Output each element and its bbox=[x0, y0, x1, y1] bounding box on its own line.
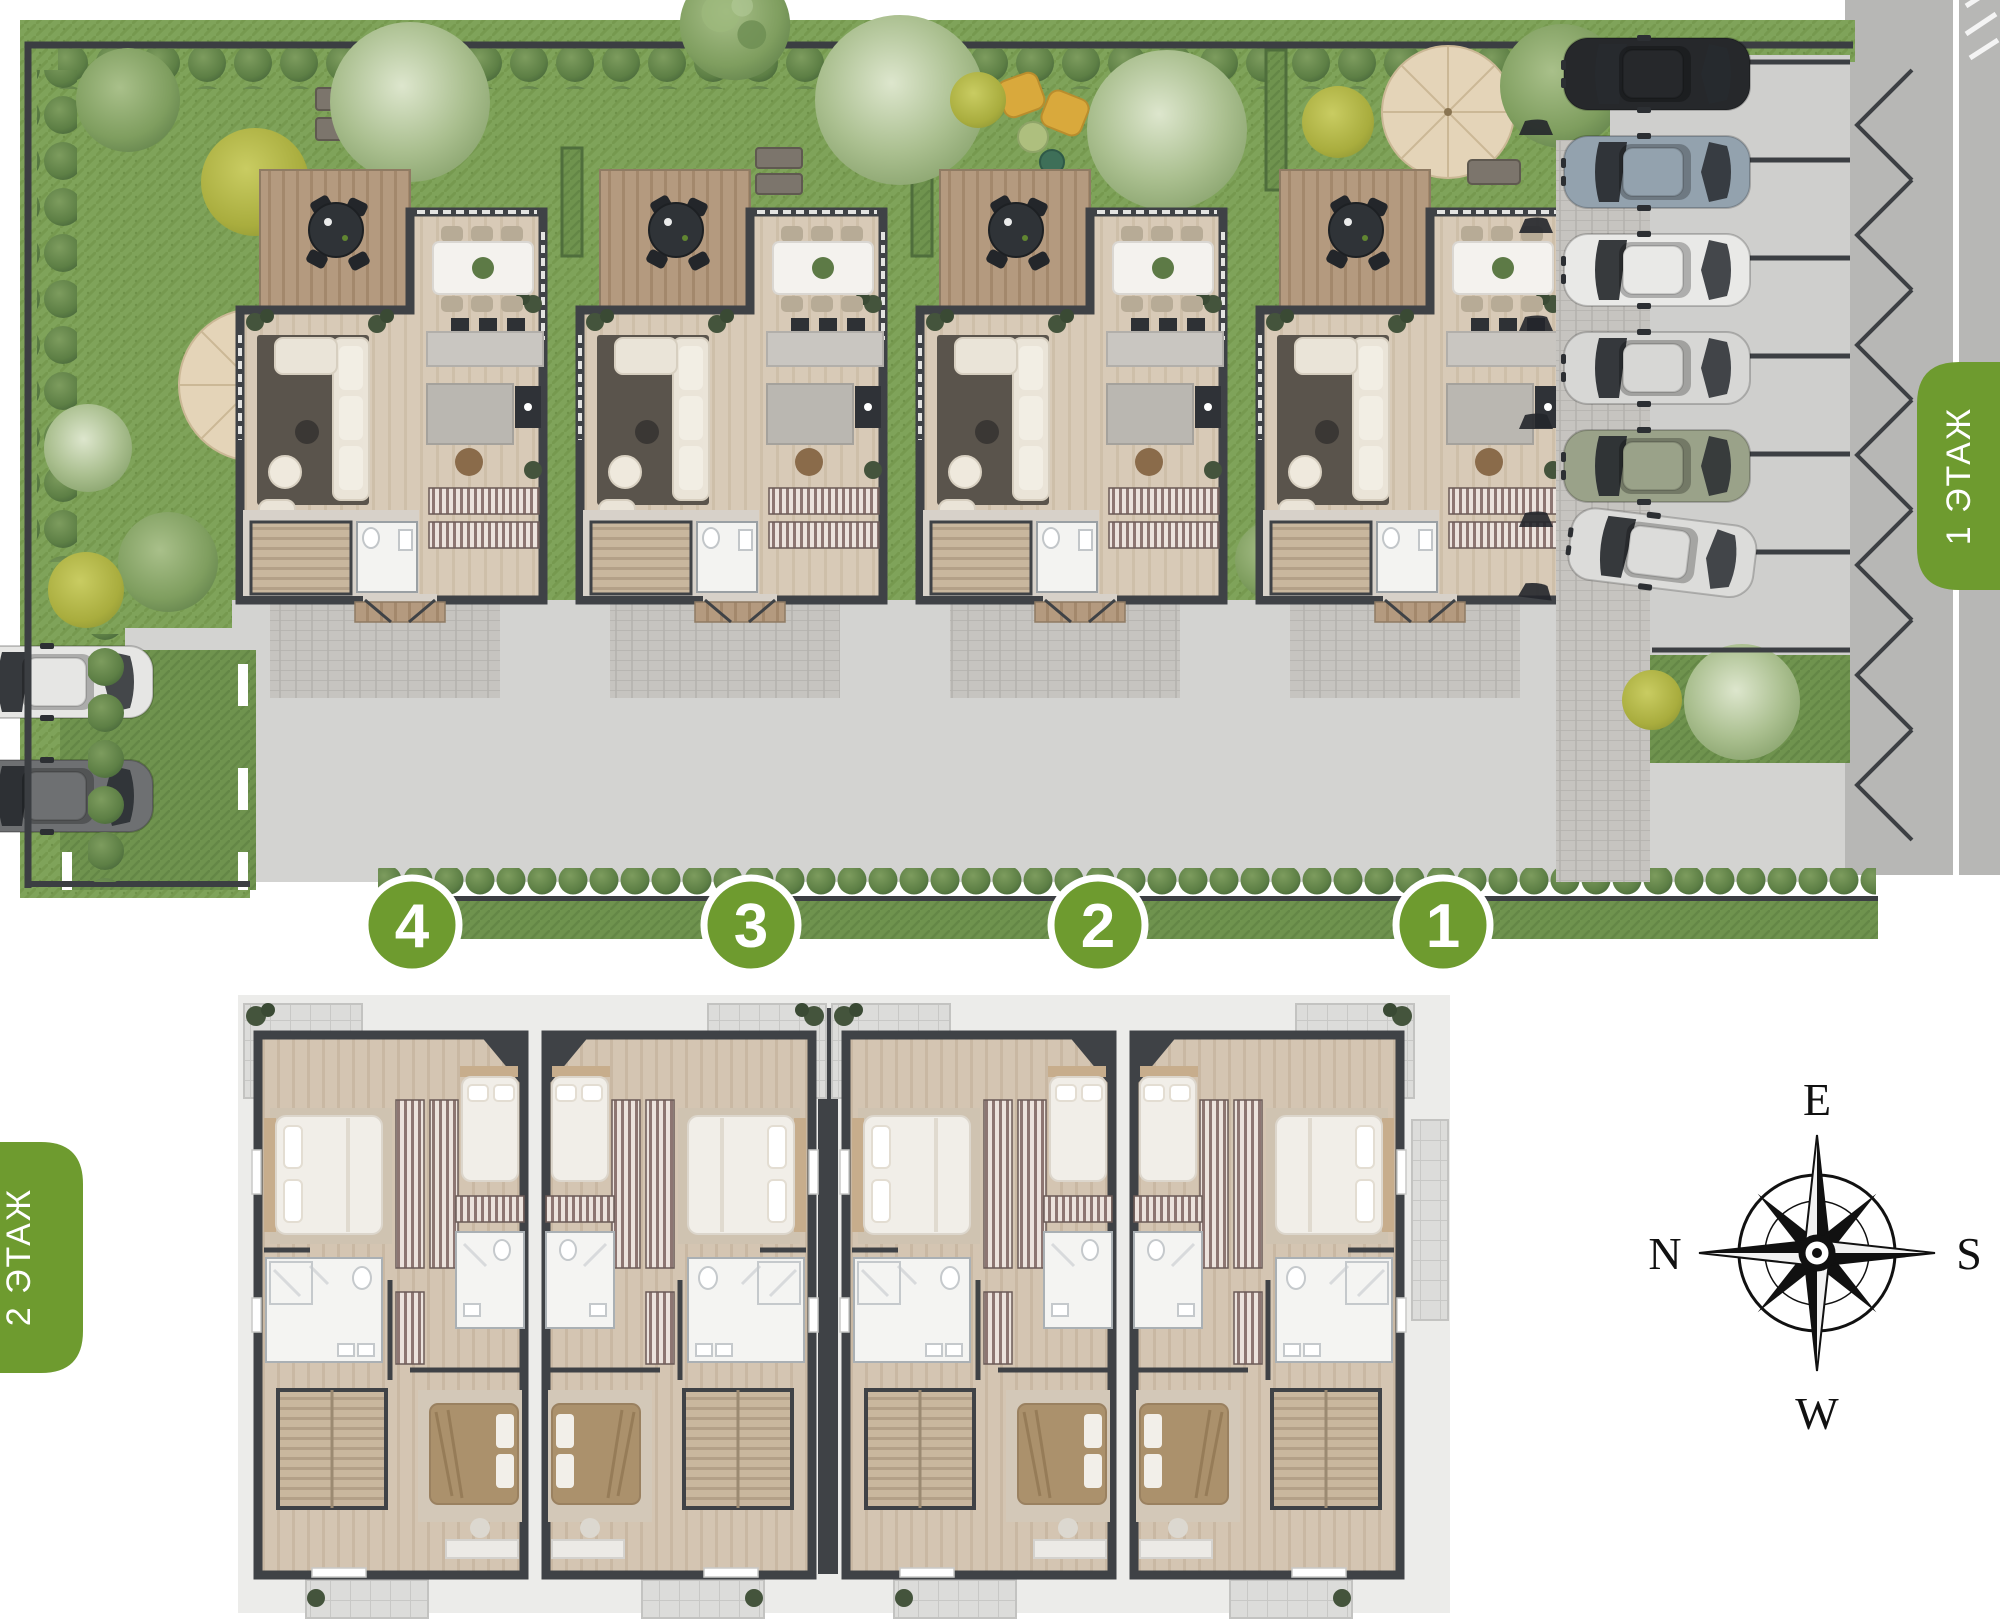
unit-badge-2-label: 2 bbox=[1081, 892, 1115, 961]
floorplan-page: 4 3 2 1 1 ЭТАЖ bbox=[0, 0, 2000, 1621]
floor1-tab[interactable]: 1 ЭТАЖ bbox=[1917, 362, 2000, 590]
street-parking bbox=[1518, 35, 1850, 882]
compass-rose: E N S W bbox=[1648, 1074, 1981, 1439]
unit-3-floor2 bbox=[546, 1003, 826, 1618]
unit-badge-1-label: 1 bbox=[1426, 892, 1460, 961]
unit-4-floor2 bbox=[244, 1003, 524, 1618]
unit-1-floor2 bbox=[1134, 1003, 1414, 1618]
unit-badge-4[interactable]: 4 bbox=[365, 878, 459, 972]
unit-badge-1[interactable]: 1 bbox=[1396, 878, 1490, 972]
floorplan-canvas: 4 3 2 1 1 ЭТАЖ bbox=[0, 0, 2000, 1621]
compass-north-label: N bbox=[1648, 1228, 1681, 1279]
unit-1-floor1 bbox=[1260, 170, 1563, 622]
unit-2-floor1 bbox=[920, 170, 1223, 622]
compass-west-label: W bbox=[1795, 1388, 1839, 1439]
floor1-tab-label: 1 ЭТАЖ bbox=[1940, 407, 1978, 546]
unit-badge-4-label: 4 bbox=[395, 892, 430, 961]
unit-badge-3-label: 3 bbox=[734, 892, 768, 961]
unit-2-floor2 bbox=[832, 1003, 1112, 1618]
floor2-tab-label: 2 ЭТАЖ bbox=[0, 1188, 38, 1327]
site-plan-floor1: 4 3 2 1 1 ЭТАЖ bbox=[0, 0, 2000, 972]
compass-south-label: S bbox=[1956, 1228, 1982, 1279]
floor2-tab[interactable]: 2 ЭТАЖ bbox=[0, 1142, 83, 1373]
unit-3-floor1 bbox=[580, 170, 883, 622]
unit-badge-2[interactable]: 2 bbox=[1051, 878, 1145, 972]
unit-4-floor1 bbox=[240, 170, 543, 622]
floor2-plan: 2 ЭТАЖ bbox=[0, 995, 1450, 1618]
compass-east-label: E bbox=[1803, 1074, 1831, 1125]
unit-badge-3[interactable]: 3 bbox=[704, 878, 798, 972]
